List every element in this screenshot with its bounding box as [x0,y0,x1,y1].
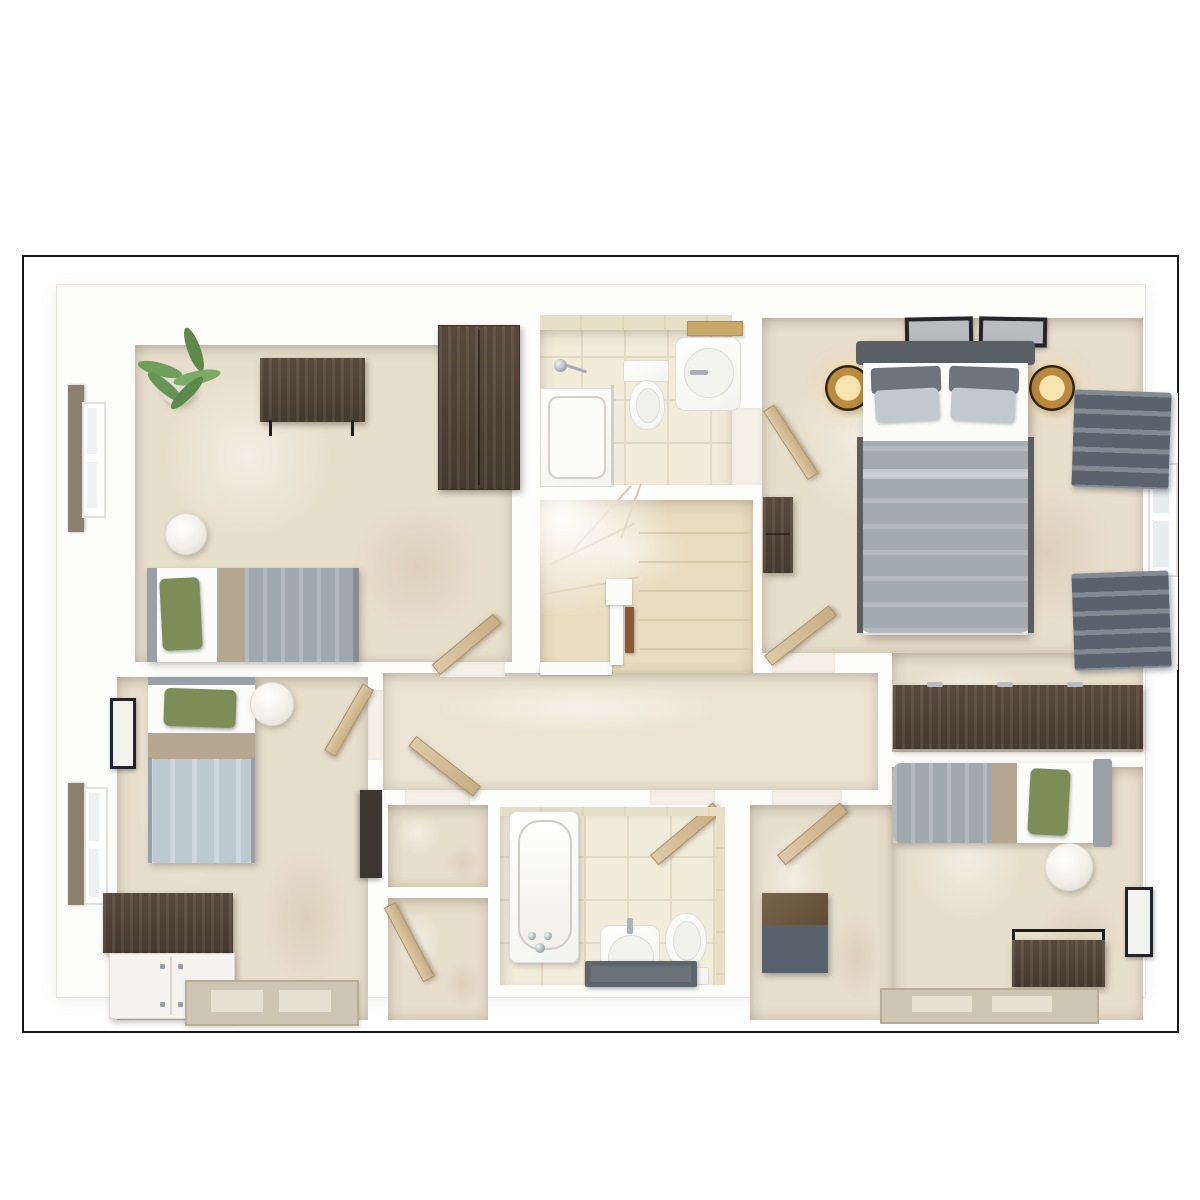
palm-plant [131,341,221,431]
master-roman-blind-top [1071,389,1171,489]
bedroom4-desk-frame [1012,929,1105,932]
stair-balustrade [540,662,612,675]
green-pillow [163,688,236,728]
bath-tap [528,932,536,940]
ensuite-doorway [732,408,762,485]
ensuite-shelf [687,321,743,336]
bedroom2-bed [147,568,359,662]
bathtub [509,811,579,963]
desk-leg [351,420,354,436]
building-footprint [57,285,1145,997]
master-roman-blind-bottom [1071,570,1171,670]
bedroom4-stool [1045,843,1093,891]
bath-spout [535,943,545,953]
shower-glass-screen [611,385,614,485]
stair-tread [639,648,753,650]
bedroom3-bed [148,677,255,863]
stair-tread [639,619,753,621]
master-long-desk [893,685,1143,749]
shower-tray [540,388,614,487]
floorplan-render [0,0,1200,1200]
bedroom2-stool [165,513,207,555]
green-pillow [1027,768,1070,836]
bedroom4-rug [880,988,1099,1024]
ensuite-toilet-bowl [629,380,665,430]
bedroom4-bed [893,763,1112,843]
plan-frame [22,255,1179,1033]
bedroom3-doorway [368,690,383,760]
stair-bulkhead-glare [540,500,670,615]
bedroom4-desk [1012,940,1105,987]
bath-tap [544,932,552,940]
bedside-lamp [1029,365,1075,411]
bedroom3-window [84,787,108,905]
bedroom3-window-blind [68,783,84,905]
cupboard-upper-floor [388,805,488,887]
cupboard-upper-doorway [405,790,470,805]
bedroom3-tall-cabinet [360,790,382,878]
newel-post [606,579,632,605]
bedroom3-pendant-stool [250,682,294,726]
bedroom4-picture-frame [1125,887,1153,957]
green-pillow [159,577,203,651]
bathroom-doorway [650,790,715,805]
bedroom2-desk [260,358,365,422]
basin-tap [690,370,708,375]
bath-mat [585,961,697,987]
ensuite-washbasin [675,337,741,411]
master-chest-of-drawers [763,497,793,573]
stair-rail-post [610,603,623,665]
bedroom2-wardrobe [438,325,520,490]
bathroom-wall-tiles-right [716,807,725,985]
bedroom3-rug [185,980,359,1026]
master-bed [863,341,1028,635]
desk-leg [269,420,272,436]
ensuite-toilet-cistern [623,360,669,382]
basin-tap [627,918,633,934]
bedroom2-window [82,402,106,518]
bedroom4-doorway [772,790,842,805]
bedroom3-picture-frame [110,698,136,769]
bedroom4-chest [762,893,828,973]
stair-handrail-wood [625,607,634,653]
